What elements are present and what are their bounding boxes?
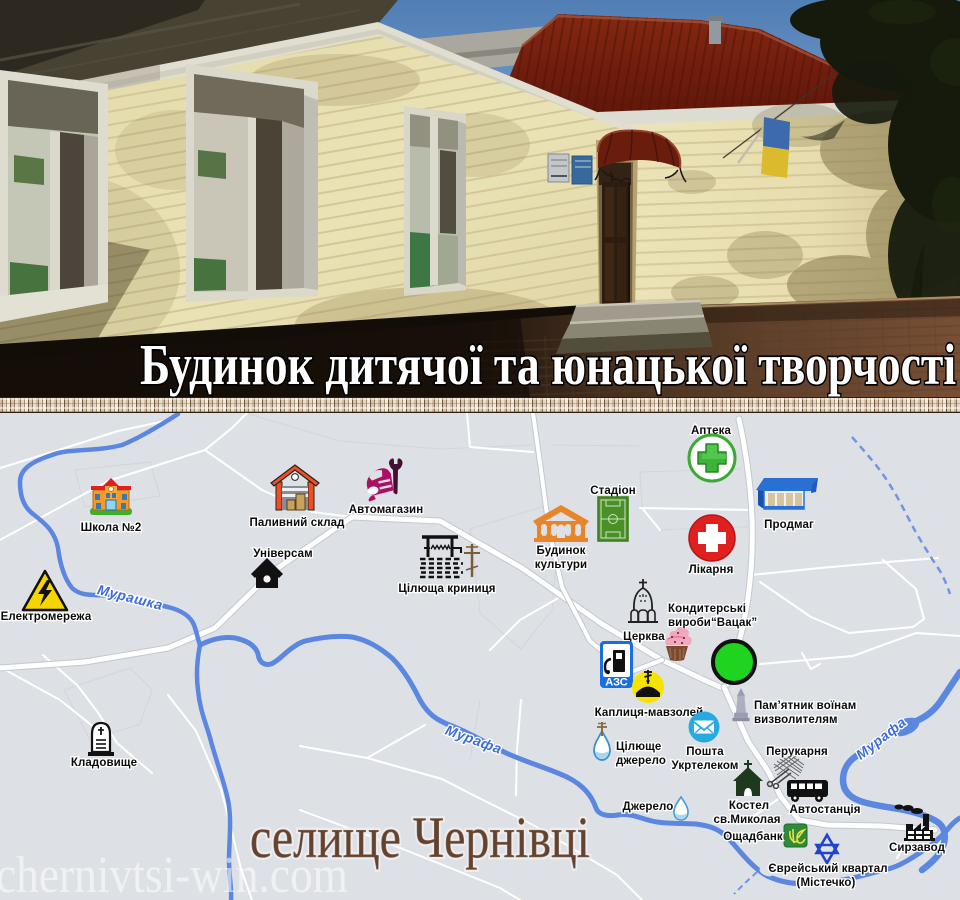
svg-text:Будинок: Будинок [536,545,585,557]
svg-text:Пошта: Пошта [686,746,724,758]
svg-text:Перукарня: Перукарня [766,746,828,758]
svg-text:chernivtsi-win.com: chernivtsi-win.com [0,847,348,900]
svg-text:Лікарня: Лікарня [689,564,734,576]
svg-text:Пам’ятник воїнам: Пам’ятник воїнам [754,700,856,712]
svg-text:Сирзавод: Сирзавод [889,842,946,854]
svg-text:визволителям: визволителям [754,714,838,726]
svg-text:(Містечко): (Містечко) [797,877,856,889]
svg-text:Школа №2: Школа №2 [81,522,142,534]
svg-text:АЗС: АЗС [605,677,628,689]
svg-text:Ощадбанк: Ощадбанк [723,831,783,843]
svg-text:культури: культури [535,559,587,571]
svg-text:Електромережа: Електромережа [1,611,92,623]
svg-text:джерело: джерело [616,755,666,767]
svg-text:Єврейський квартал: Єврейський квартал [768,863,887,875]
svg-text:Стадіон: Стадіон [590,485,636,497]
svg-text:Джерело: Джерело [623,801,674,813]
svg-text:Укртелеком: Укртелеком [672,760,739,772]
svg-text:св.Миколая: св.Миколая [713,814,780,826]
svg-text:Автостанція: Автостанція [789,804,860,816]
svg-text:Цілюще: Цілюще [616,741,661,753]
svg-text:Кладовище: Кладовище [71,757,137,769]
svg-text:Цілюща криниця: Цілюща криниця [398,583,495,595]
svg-text:Кондитерські: Кондитерські [668,603,746,615]
svg-text:Будинок дитячої та юнацької тв: Будинок дитячої та юнацької творчості [140,332,956,397]
svg-text:Універсам: Універсам [253,548,313,560]
svg-text:Паливний склад: Паливний склад [249,517,345,529]
svg-text:Автомагазин: Автомагазин [349,504,424,516]
svg-text:Костел: Костел [729,800,769,812]
svg-text:Каплиця-мавзолей: Каплиця-мавзолей [595,707,704,719]
svg-text:Продмаг: Продмаг [764,519,814,531]
